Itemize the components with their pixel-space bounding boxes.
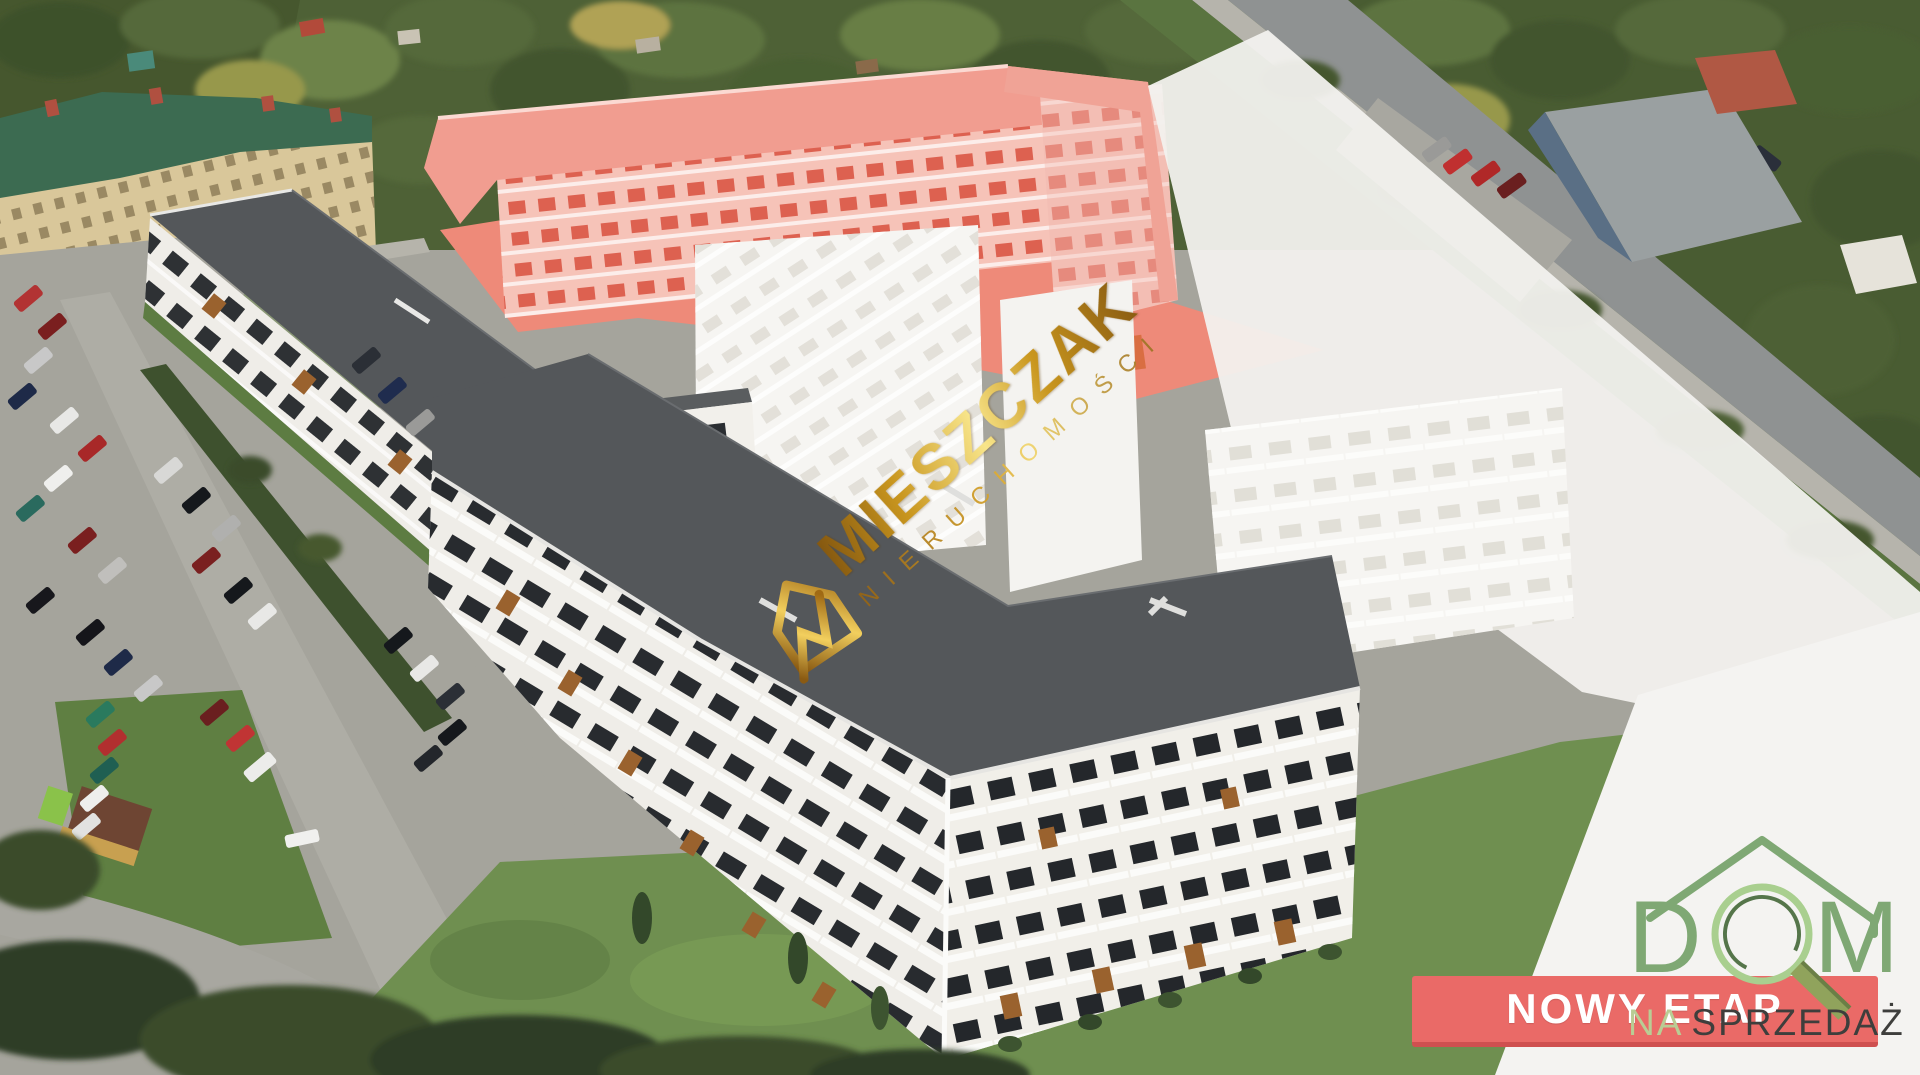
caption-prefix: NA [1628, 1002, 1683, 1043]
scene-illustration [0, 0, 1920, 1075]
caption-word: SPRZEDAŻ [1691, 1002, 1904, 1043]
aerial-development-render: MIESZCZAK NIERUCHOMOŚCI D M NOWY ETAP NA… [0, 0, 1920, 1075]
for-sale-caption: NASPRZEDAŻ [1628, 1002, 1905, 1044]
